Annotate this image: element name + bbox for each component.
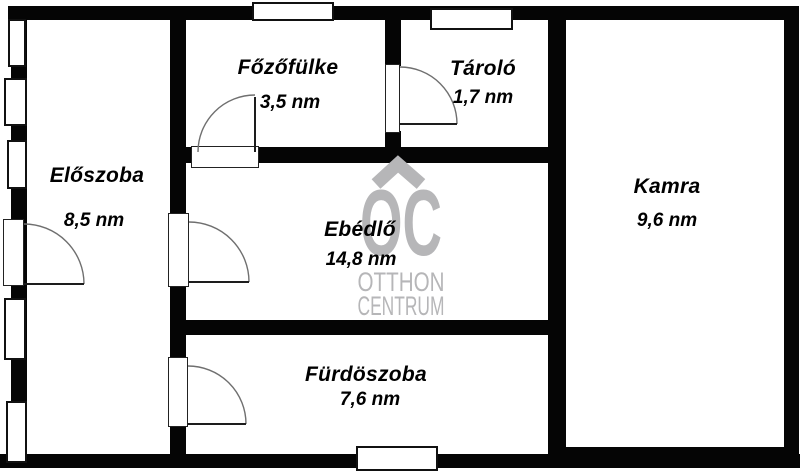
wall-fozofulke-tarolo-upper (385, 18, 401, 66)
door-ebedlo-frame (168, 213, 189, 287)
logo-roof-icon (376, 164, 421, 184)
wall-right (784, 6, 799, 468)
wall-eloszoba-lower (170, 426, 186, 455)
door-fozofulke-frame (191, 146, 259, 168)
wall-top (8, 6, 798, 20)
wall-kamra-bottom (566, 447, 784, 457)
window-top-tarolo (430, 8, 513, 30)
window-left-2 (4, 78, 27, 126)
room-area-ebedlo: 14,8 nm (326, 250, 397, 269)
door-fozofulke-swing (198, 95, 255, 152)
wall-eloszoba-upper (170, 18, 186, 218)
watermark-line1: OTTHON (358, 267, 445, 297)
wall-kamra-left (548, 18, 566, 463)
room-label-furdoszoba: Fürdöszoba (305, 364, 427, 385)
window-bottom-furdoszoba (356, 446, 438, 471)
wall-north-main (258, 147, 566, 163)
wall-ebedlo-furdoszoba (178, 320, 566, 335)
room-area-fozofulke: 3,5 nm (260, 93, 320, 112)
window-left-5 (6, 401, 27, 463)
door-entry-swing (24, 224, 84, 284)
door-ebedlo-swing (189, 222, 249, 282)
door-entry-frame (3, 219, 24, 286)
door-tarolo-swing (400, 67, 457, 124)
room-area-tarolo: 1,7 nm (453, 88, 513, 107)
window-left-3 (7, 140, 27, 189)
window-top-fozofulke (252, 2, 334, 21)
room-area-kamra: 9,6 nm (637, 211, 697, 230)
window-left-4 (4, 298, 26, 360)
door-furdoszoba-swing (188, 366, 246, 424)
room-label-fozofulke: Főzőfülke (238, 57, 339, 78)
wall-north-left-stub (170, 147, 192, 163)
room-area-furdoszoba: 7,6 nm (340, 390, 400, 409)
door-tarolo-frame (385, 64, 400, 133)
room-label-kamra: Kamra (634, 176, 701, 197)
window-left-1 (8, 19, 26, 67)
otthon-centrum-watermark: OC OTTHON CENTRUM (358, 164, 445, 321)
room-label-tarolo: Tároló (450, 58, 516, 79)
room-label-ebedlo: Ebédlő (324, 219, 396, 240)
door-furdoszoba-frame (168, 357, 188, 427)
watermark-line2: CENTRUM (358, 291, 445, 321)
room-area-eloszoba: 8,5 nm (64, 211, 124, 230)
floor-plan: OC OTTHON CENTRUM Előszoba 8,5 nm Főzőfü… (0, 0, 800, 475)
room-label-eloszoba: Előszoba (50, 165, 145, 186)
